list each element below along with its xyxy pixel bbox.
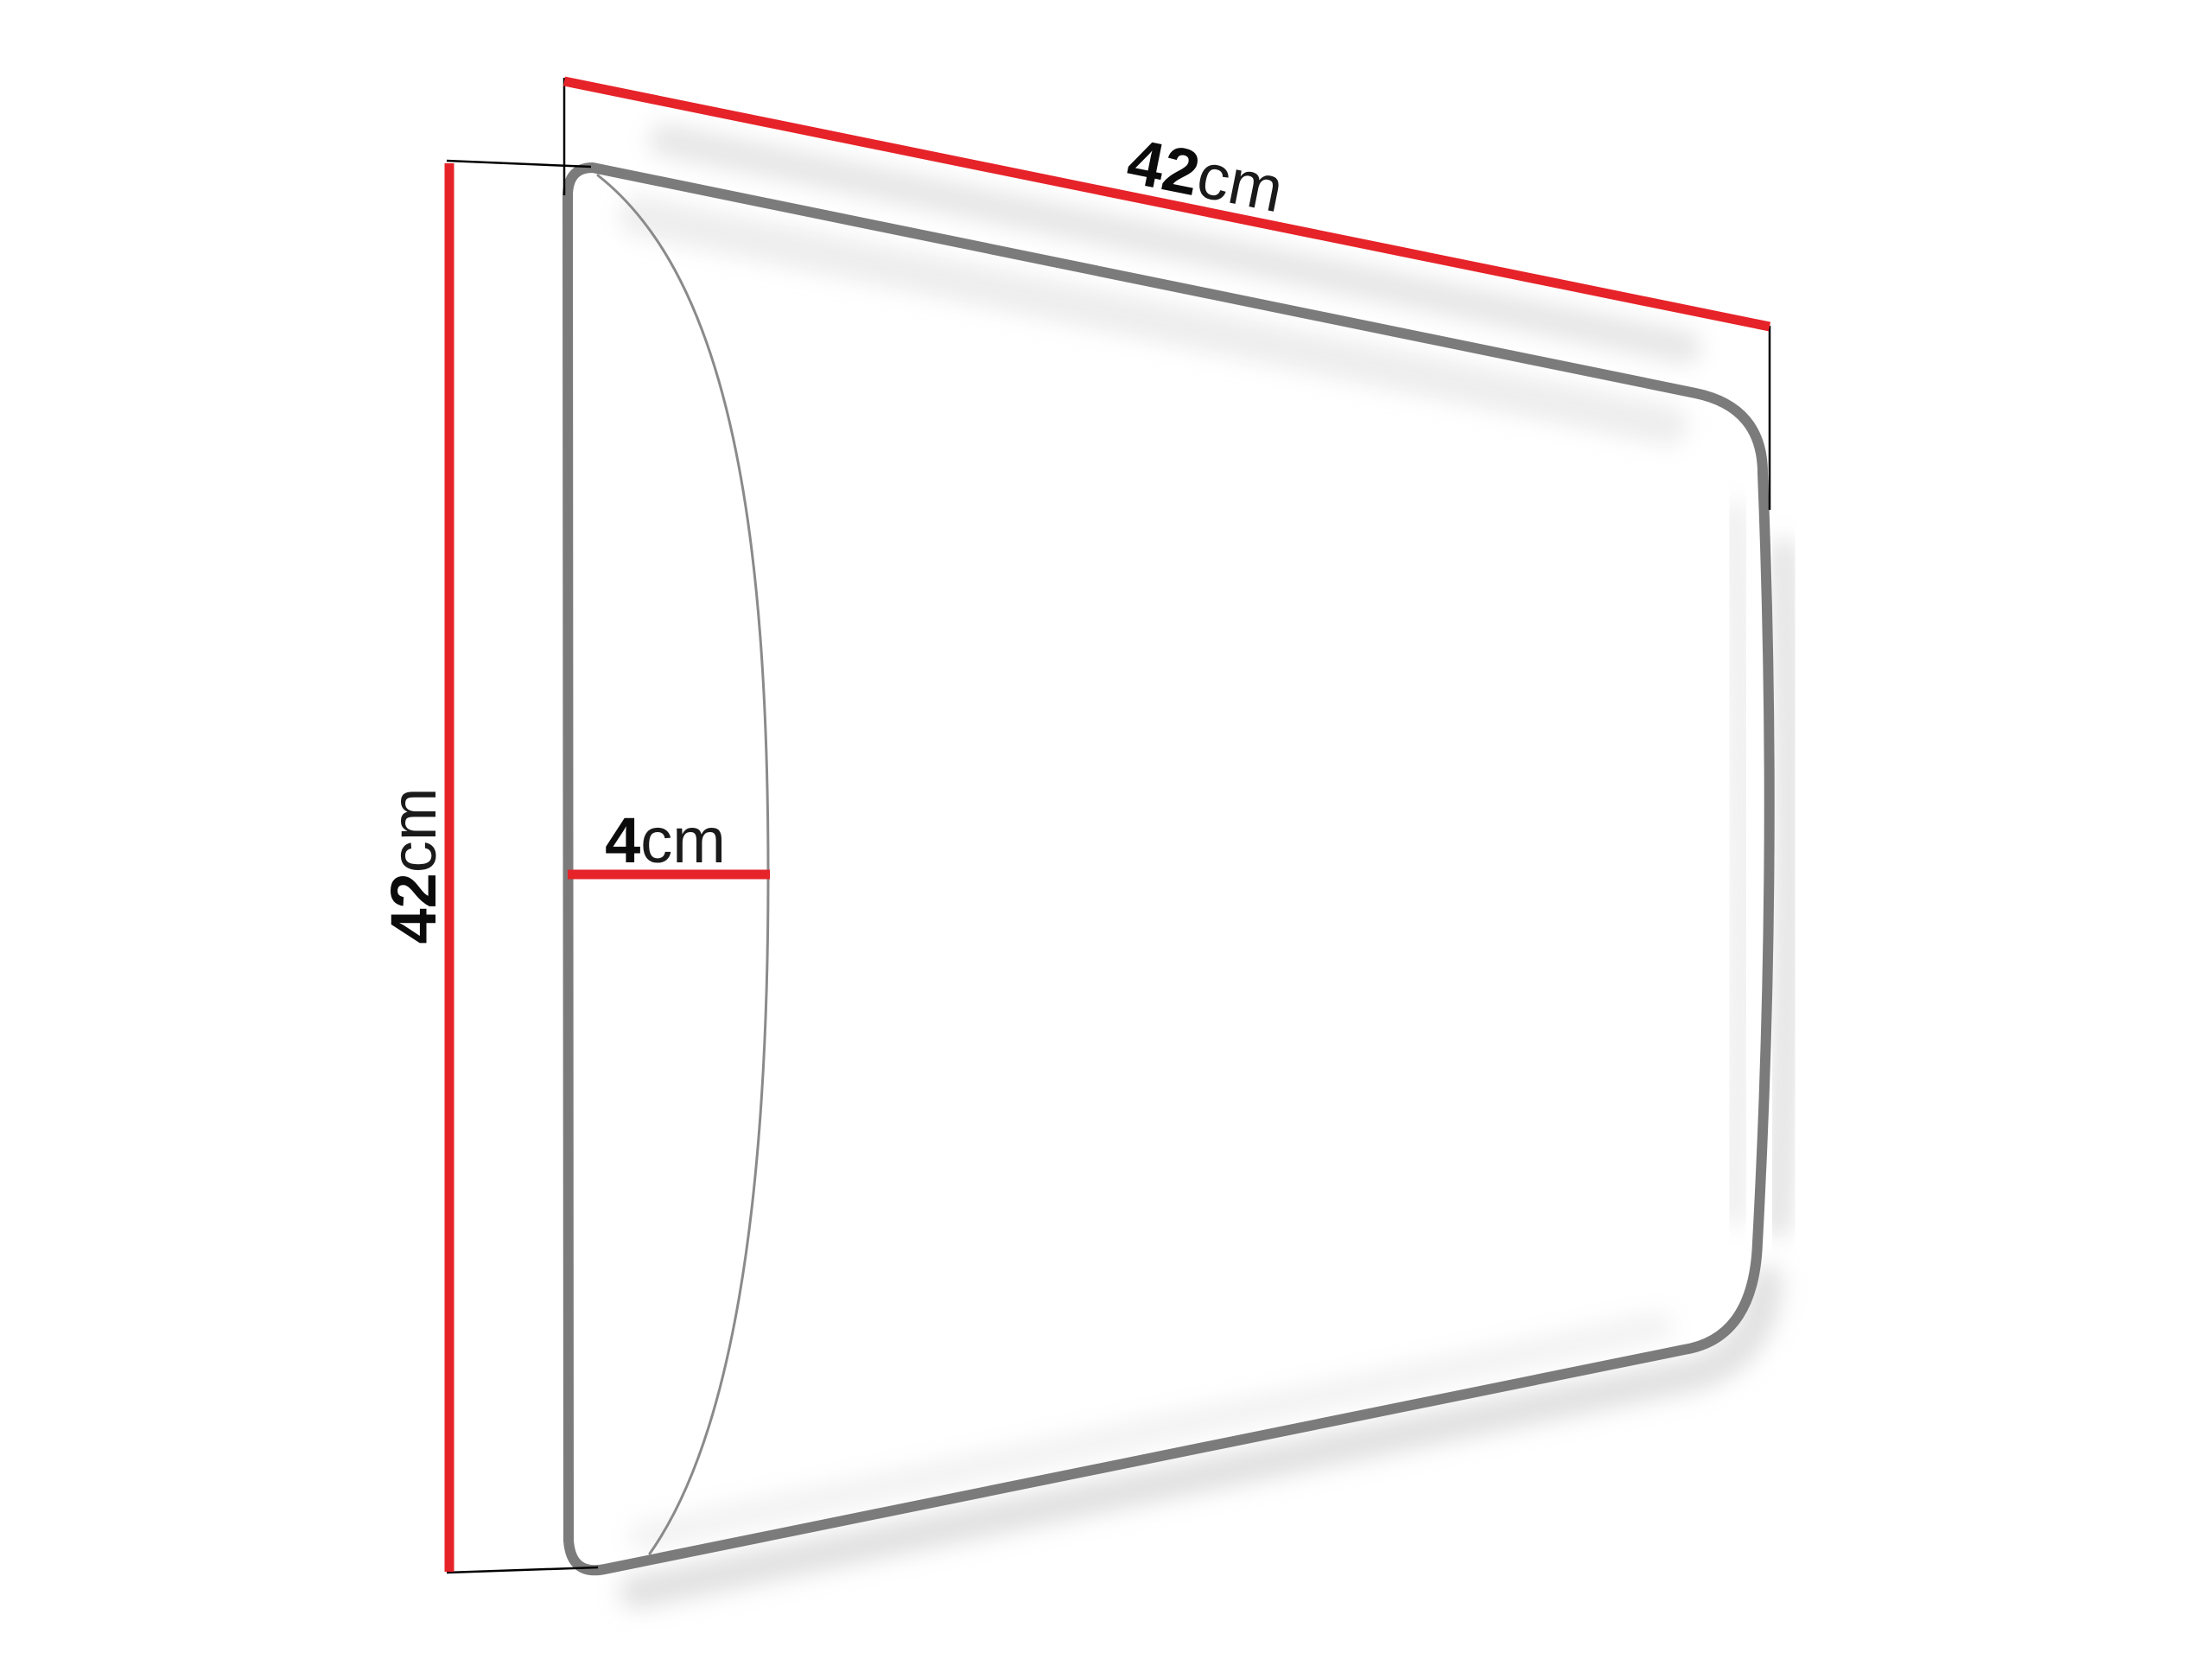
height-dimension-label: 42cm	[378, 788, 449, 944]
depth-unit: cm	[640, 804, 726, 876]
diagram-canvas: 42cm 42cm 4cm	[0, 0, 2212, 1659]
depth-dimension-label: 4cm	[605, 804, 726, 876]
depth-value: 4	[605, 804, 640, 876]
inner-shade-right	[1733, 518, 1743, 1210]
panel-face	[568, 168, 1770, 1570]
width-dimension-label: 42cm	[1122, 125, 1289, 226]
extension-line-top-left-horizontal	[447, 161, 591, 167]
height-unit: cm	[378, 788, 449, 874]
extension-line-bottom-left-horizontal	[447, 1567, 598, 1573]
shadow-right-edge	[1777, 553, 1790, 1223]
height-value: 42	[378, 873, 449, 944]
width-value: 42	[1122, 125, 1205, 210]
panel-dimension-diagram: 42cm 42cm 4cm	[0, 0, 2212, 1659]
